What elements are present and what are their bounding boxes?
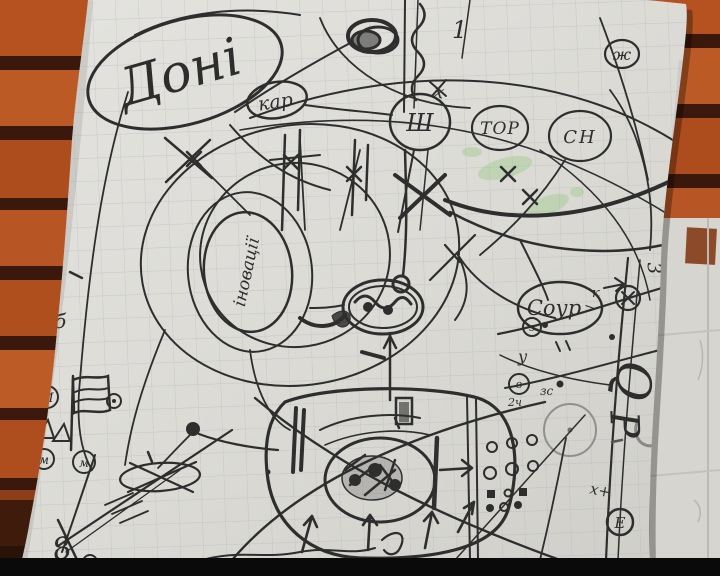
photo-of-whiteboard-sketch: Доні кар Ш ТОР СН 1 х ж іновації Соур > … <box>0 0 720 576</box>
v-letter-text: в <box>516 378 522 391</box>
tor-text: ТОР <box>480 119 520 139</box>
zh-text: ж <box>613 45 632 64</box>
u-letter-text: у <box>517 347 528 366</box>
z-letter-text: з <box>529 321 535 334</box>
e-letter-text: Е <box>614 514 626 532</box>
sn-text: СН <box>563 127 596 148</box>
sour-text: Соур <box>527 296 581 320</box>
sh-text: Ш <box>405 109 434 137</box>
sketch-scene: Доні кар Ш ТОР СН 1 х ж іновації Соур > … <box>0 0 720 576</box>
k-letter-text: к <box>592 286 600 301</box>
sour-arrow-text: > <box>584 301 596 317</box>
node-dot <box>186 422 200 436</box>
m-small-text: м <box>79 456 89 470</box>
zs-text: зс <box>540 384 554 398</box>
twenty-four-text: 2ч <box>507 396 522 409</box>
number-one-text: 1 <box>452 16 467 44</box>
letterbox-bar <box>0 558 720 576</box>
q-letter-text: Q <box>603 358 663 403</box>
wall-brown-tab <box>685 227 717 265</box>
p-letter-text: Р <box>600 409 647 440</box>
